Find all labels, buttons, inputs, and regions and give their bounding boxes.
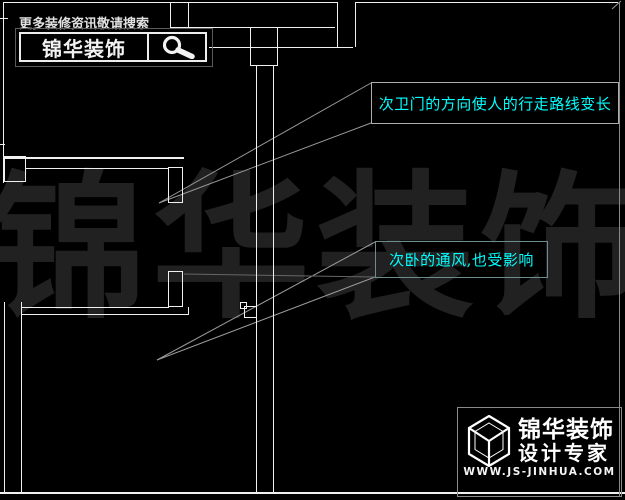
cube-icon — [466, 415, 512, 467]
room-bottom-wall-cap — [188, 307, 189, 315]
annotation-box-bedroom-vent: 次卧的通风,也受影响 — [375, 241, 548, 278]
leader-callout1-lower — [159, 123, 371, 203]
footer-logo-row: 锦华装饰 设计专家 — [466, 415, 614, 467]
room-bottom-wall-inner — [21, 307, 169, 308]
wall-stub-v1 — [170, 2, 171, 27]
wall-line-inner-top2 — [209, 47, 353, 48]
wall-line-top-right — [355, 2, 618, 3]
wall-tick-lower — [0, 144, 5, 145]
wall-stub-v3 — [337, 2, 338, 47]
annotation-text-bathroom-door: 次卫门的方向使人的行走路线变长 — [379, 93, 612, 114]
break-symbol-notch — [240, 302, 247, 309]
footer-website-label: WWW.JS-JINHUA.COM — [458, 466, 621, 478]
footer-brand-label: 锦华装饰 — [518, 417, 614, 442]
reference-line-horizontal — [184, 274, 374, 277]
leader-callout2-lower — [157, 277, 375, 360]
wall-line-center-v1 — [256, 65, 257, 493]
footer-logo-box: 锦华装饰 设计专家 WWW.JS-JINHUA.COM — [457, 407, 622, 497]
search-brand-box: 锦华装饰 — [19, 32, 207, 62]
left-wall-v1 — [4, 302, 5, 493]
magnifier-icon — [154, 35, 200, 59]
leader-callout2-upper — [157, 242, 375, 360]
pier-outline — [4, 156, 26, 182]
annotation-box-bathroom-door: 次卫门的方向使人的行走路线变长 — [371, 82, 619, 124]
room-bottom-wall-outer — [21, 314, 189, 315]
leader-callout1-upper — [159, 83, 371, 203]
search-brand-label: 锦华装饰 — [21, 34, 147, 60]
wall-stub-v2 — [188, 2, 189, 27]
door-jamb-lower — [168, 271, 183, 307]
column-outline — [250, 27, 278, 66]
search-icon-cell — [147, 34, 205, 60]
room-top-wall-outer — [4, 157, 184, 159]
wall-line-center-v2 — [273, 65, 274, 493]
footer-texts: 锦华装饰 设计专家 — [518, 417, 614, 465]
annotation-text-bedroom-vent: 次卧的通风,也受影响 — [389, 249, 534, 270]
door-jamb-upper — [168, 167, 183, 203]
left-wall-v2 — [21, 302, 22, 493]
room-top-wall-inner — [25, 168, 169, 169]
wall-stub-v4 — [355, 2, 356, 47]
footer-tagline-label: 设计专家 — [518, 442, 614, 465]
cad-canvas: 锦华装饰 次卫门的方向使人的行走路线变长 次卧的通风,也受影响 更多装修资讯敬请… — [0, 0, 625, 500]
wall-tick-upper — [0, 18, 8, 19]
